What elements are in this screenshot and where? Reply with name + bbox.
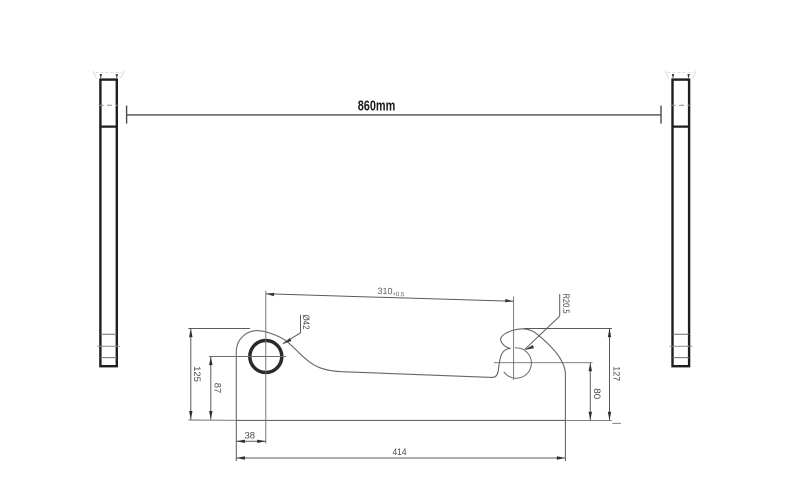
- svg-text:310+0.5: 310+0.5: [377, 286, 405, 298]
- svg-text:Ø42: Ø42: [300, 315, 311, 330]
- svg-text:80: 80: [591, 388, 602, 399]
- svg-text:125: 125: [191, 366, 202, 382]
- svg-text:127: 127: [610, 366, 621, 381]
- svg-text:414: 414: [393, 447, 407, 458]
- svg-text:860mm: 860mm: [358, 99, 396, 115]
- svg-text:87: 87: [212, 383, 223, 394]
- svg-text:38: 38: [245, 430, 256, 441]
- svg-text:R20.5: R20.5: [560, 294, 571, 314]
